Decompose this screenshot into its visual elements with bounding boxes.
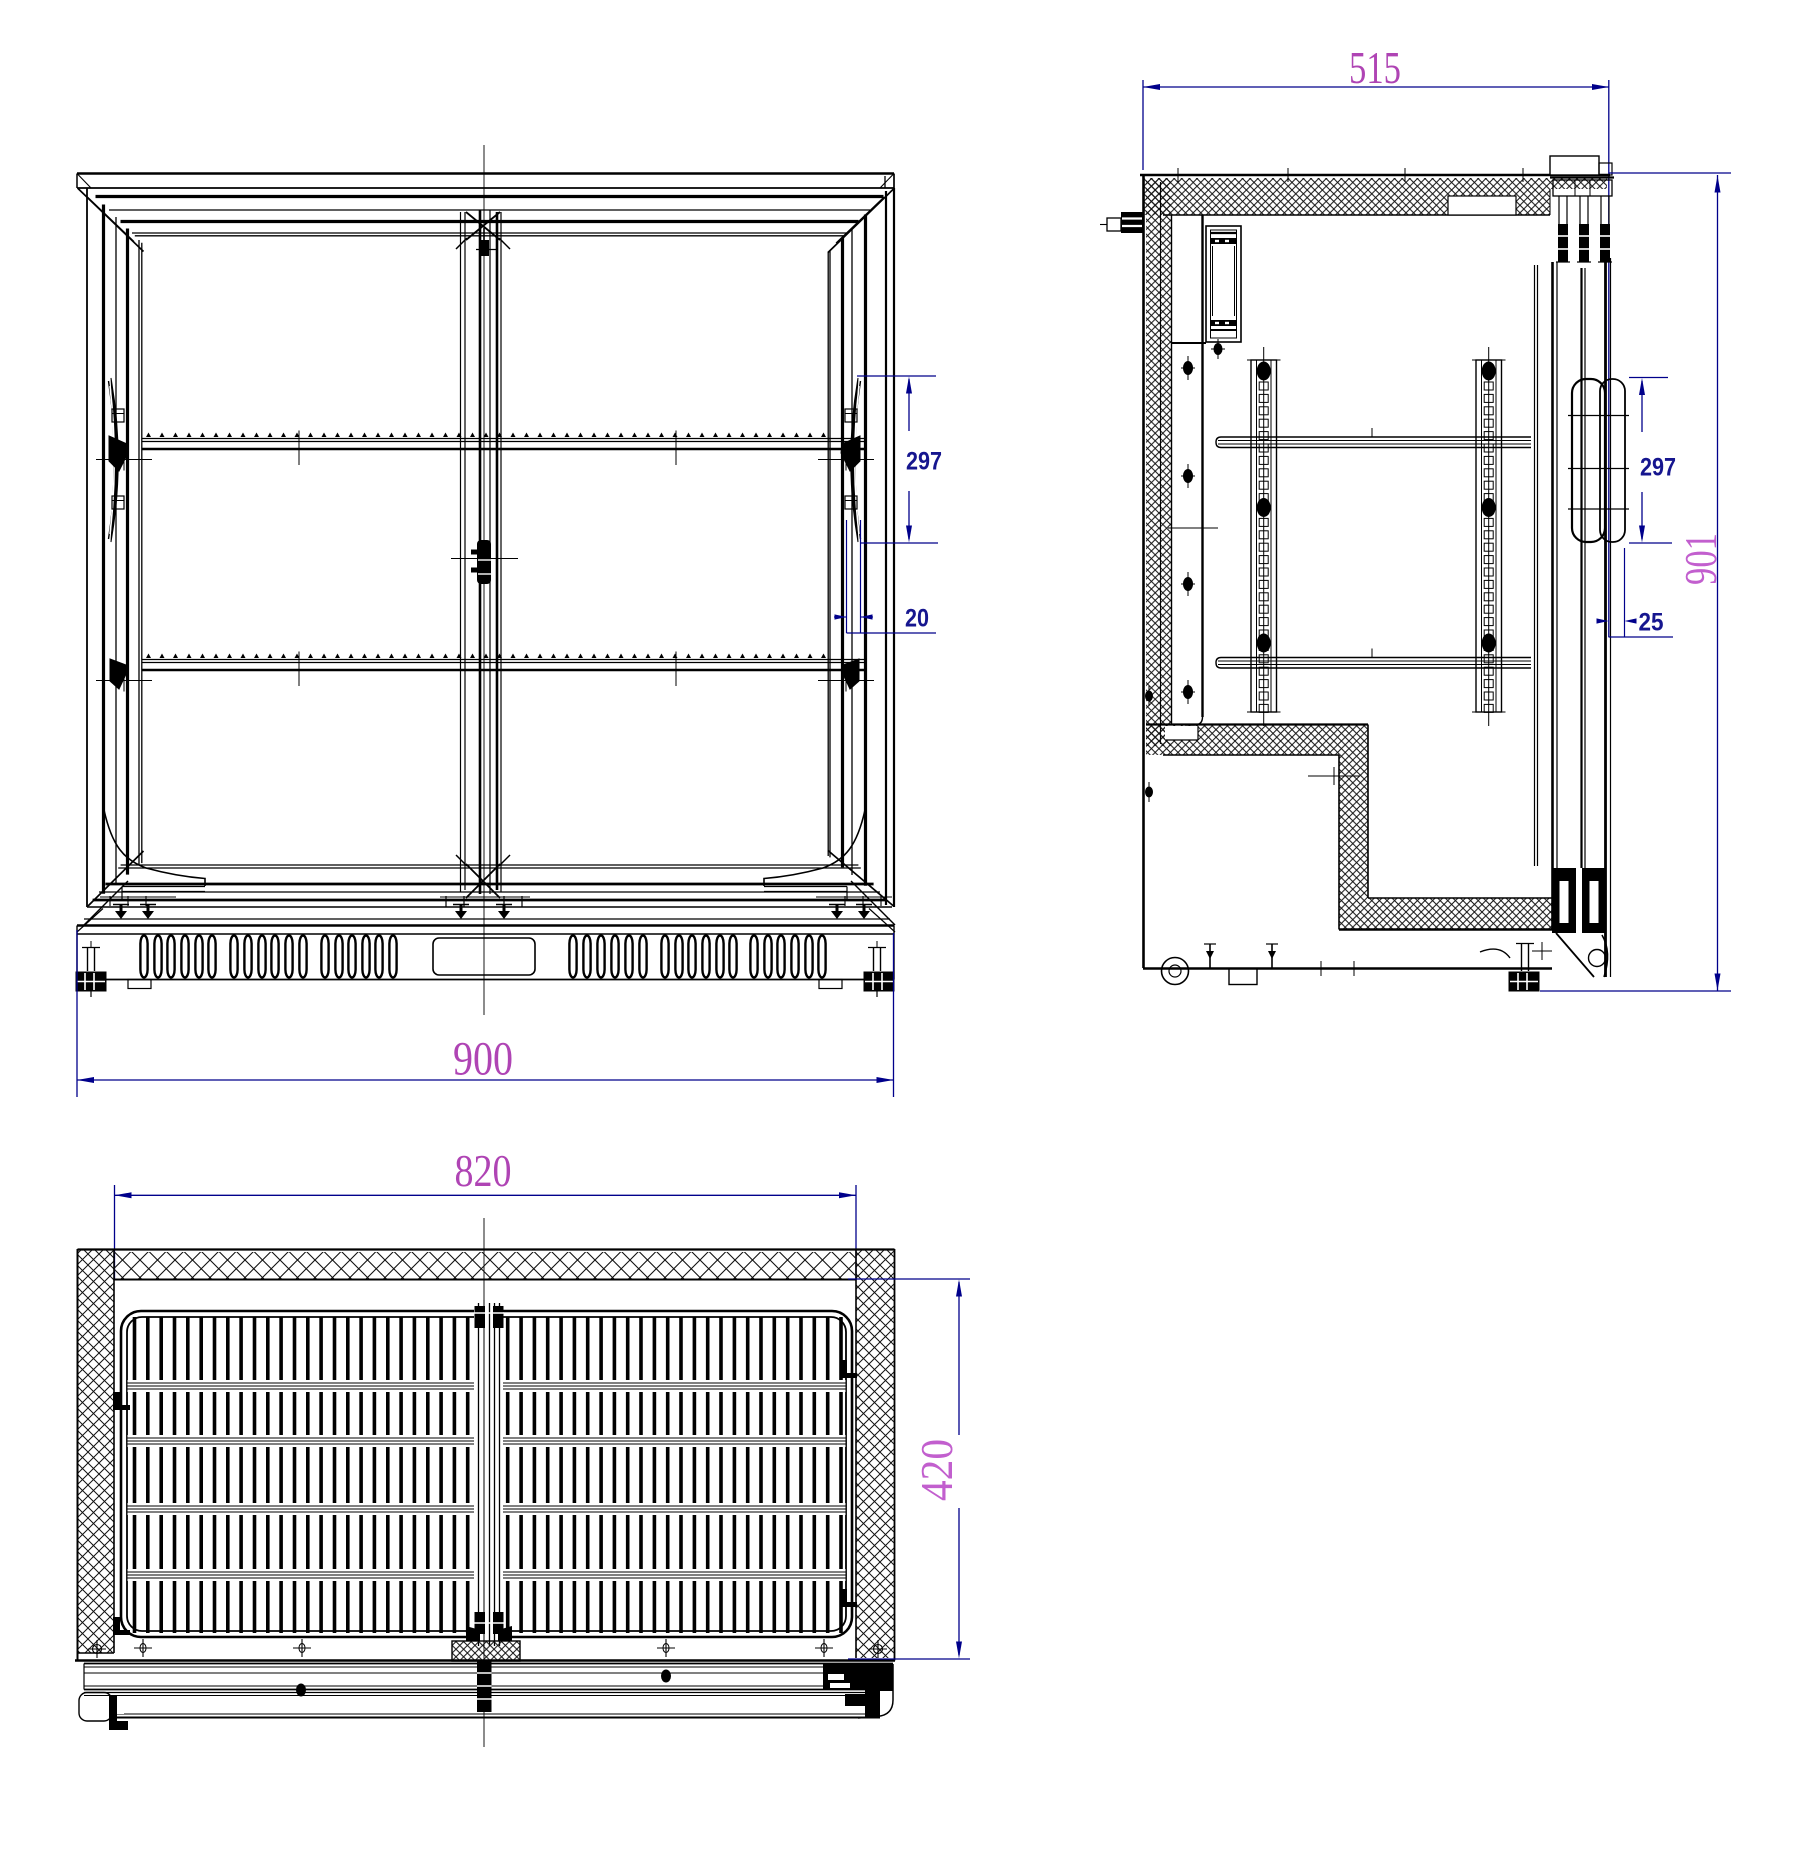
svg-text:820: 820 [455, 1145, 512, 1196]
svg-text:297: 297 [1640, 454, 1676, 482]
svg-text:25: 25 [1639, 609, 1664, 637]
svg-text:420: 420 [911, 1439, 962, 1501]
svg-text:297: 297 [906, 448, 942, 476]
svg-text:515: 515 [1349, 42, 1401, 93]
svg-text:901: 901 [1675, 533, 1726, 585]
svg-text:900: 900 [453, 1032, 513, 1085]
svg-text:20: 20 [905, 605, 929, 633]
